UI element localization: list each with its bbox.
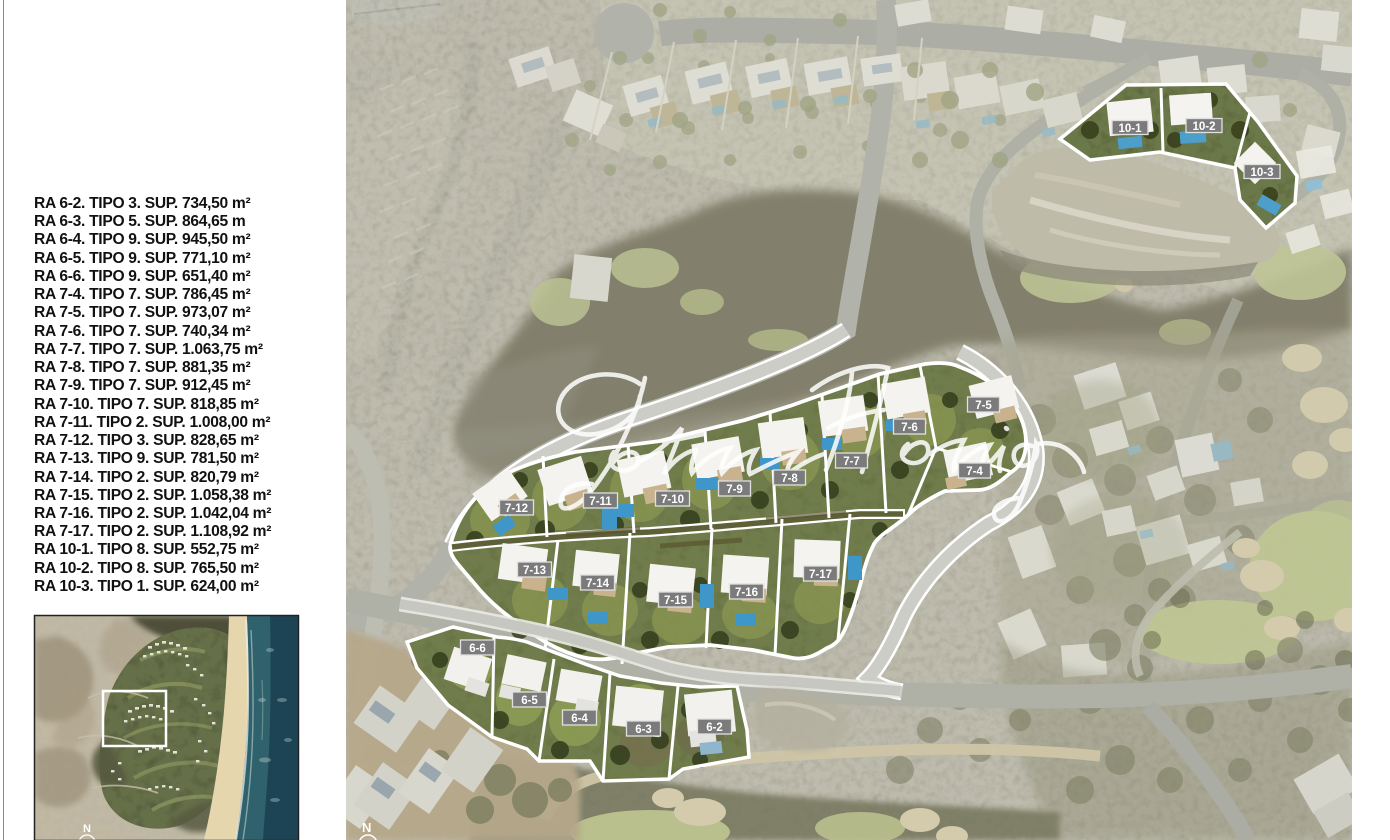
svg-text:6-6: 6-6 bbox=[469, 643, 486, 655]
svg-text:6-2: 6-2 bbox=[706, 722, 723, 734]
svg-text:7-4: 7-4 bbox=[966, 466, 983, 478]
svg-text:N: N bbox=[83, 823, 91, 835]
svg-text:10-1: 10-1 bbox=[1118, 123, 1142, 135]
svg-text:6-3: 6-3 bbox=[635, 724, 652, 736]
svg-text:7-7: 7-7 bbox=[843, 456, 860, 468]
svg-text:7-15: 7-15 bbox=[664, 595, 688, 607]
svg-text:7-10: 7-10 bbox=[661, 494, 684, 506]
svg-text:7-8: 7-8 bbox=[781, 473, 798, 485]
svg-text:6-5: 6-5 bbox=[521, 695, 538, 707]
svg-text:7-12: 7-12 bbox=[505, 503, 528, 515]
svg-text:7-13: 7-13 bbox=[523, 565, 546, 577]
svg-text:6-4: 6-4 bbox=[571, 713, 588, 725]
svg-text:7-17: 7-17 bbox=[809, 569, 832, 581]
svg-text:10-2: 10-2 bbox=[1192, 121, 1215, 133]
svg-text:7-5: 7-5 bbox=[975, 400, 992, 412]
svg-text:7-6: 7-6 bbox=[901, 422, 918, 434]
svg-text:10-3: 10-3 bbox=[1250, 167, 1273, 179]
svg-text:7-11: 7-11 bbox=[589, 496, 612, 508]
svg-text:7-9: 7-9 bbox=[726, 484, 743, 496]
svg-text:7-16: 7-16 bbox=[735, 587, 758, 599]
svg-text:7-14: 7-14 bbox=[586, 578, 610, 590]
svg-text:N: N bbox=[362, 820, 371, 835]
